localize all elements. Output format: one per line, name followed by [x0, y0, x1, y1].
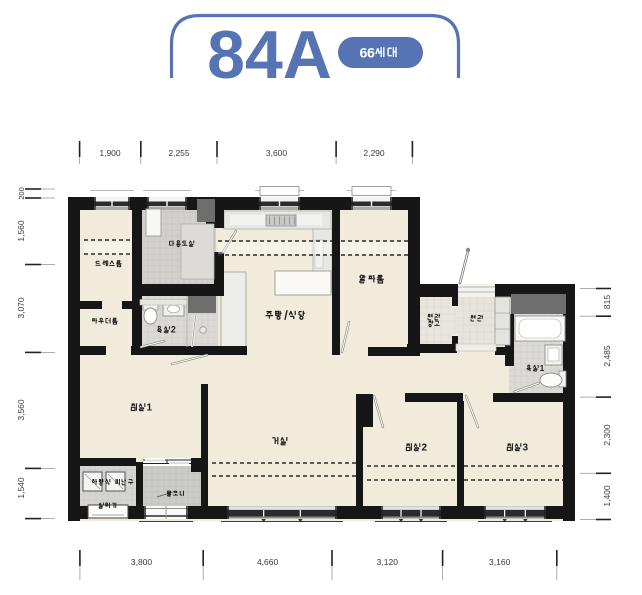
svg-text:3,800: 3,800 — [131, 557, 153, 567]
svg-text:1: 1 — [540, 363, 545, 373]
svg-text:3: 3 — [523, 443, 529, 454]
svg-text:2,485: 2,485 — [602, 345, 612, 367]
svg-text:200: 200 — [17, 187, 26, 200]
svg-text:3,600: 3,600 — [266, 148, 288, 158]
svg-text:2: 2 — [171, 325, 176, 335]
svg-text:1: 1 — [147, 403, 153, 414]
svg-text:1,900: 1,900 — [99, 148, 121, 158]
svg-text:1,540: 1,540 — [16, 477, 26, 499]
svg-text:2: 2 — [422, 443, 428, 454]
svg-text:2,300: 2,300 — [602, 424, 612, 446]
svg-text:1,560: 1,560 — [16, 220, 26, 242]
svg-text:3,560: 3,560 — [16, 399, 26, 421]
svg-text:1,400: 1,400 — [602, 485, 612, 507]
svg-text:2,290: 2,290 — [363, 148, 385, 158]
svg-text:3,070: 3,070 — [16, 297, 26, 319]
svg-text:3,120: 3,120 — [377, 557, 399, 567]
svg-text:84A: 84A — [207, 17, 332, 93]
svg-text:6: 6 — [367, 46, 375, 62]
svg-text:2,255: 2,255 — [168, 148, 190, 158]
svg-text:3,160: 3,160 — [489, 557, 511, 567]
svg-text:815: 815 — [602, 295, 612, 309]
svg-text:4,660: 4,660 — [257, 557, 279, 567]
